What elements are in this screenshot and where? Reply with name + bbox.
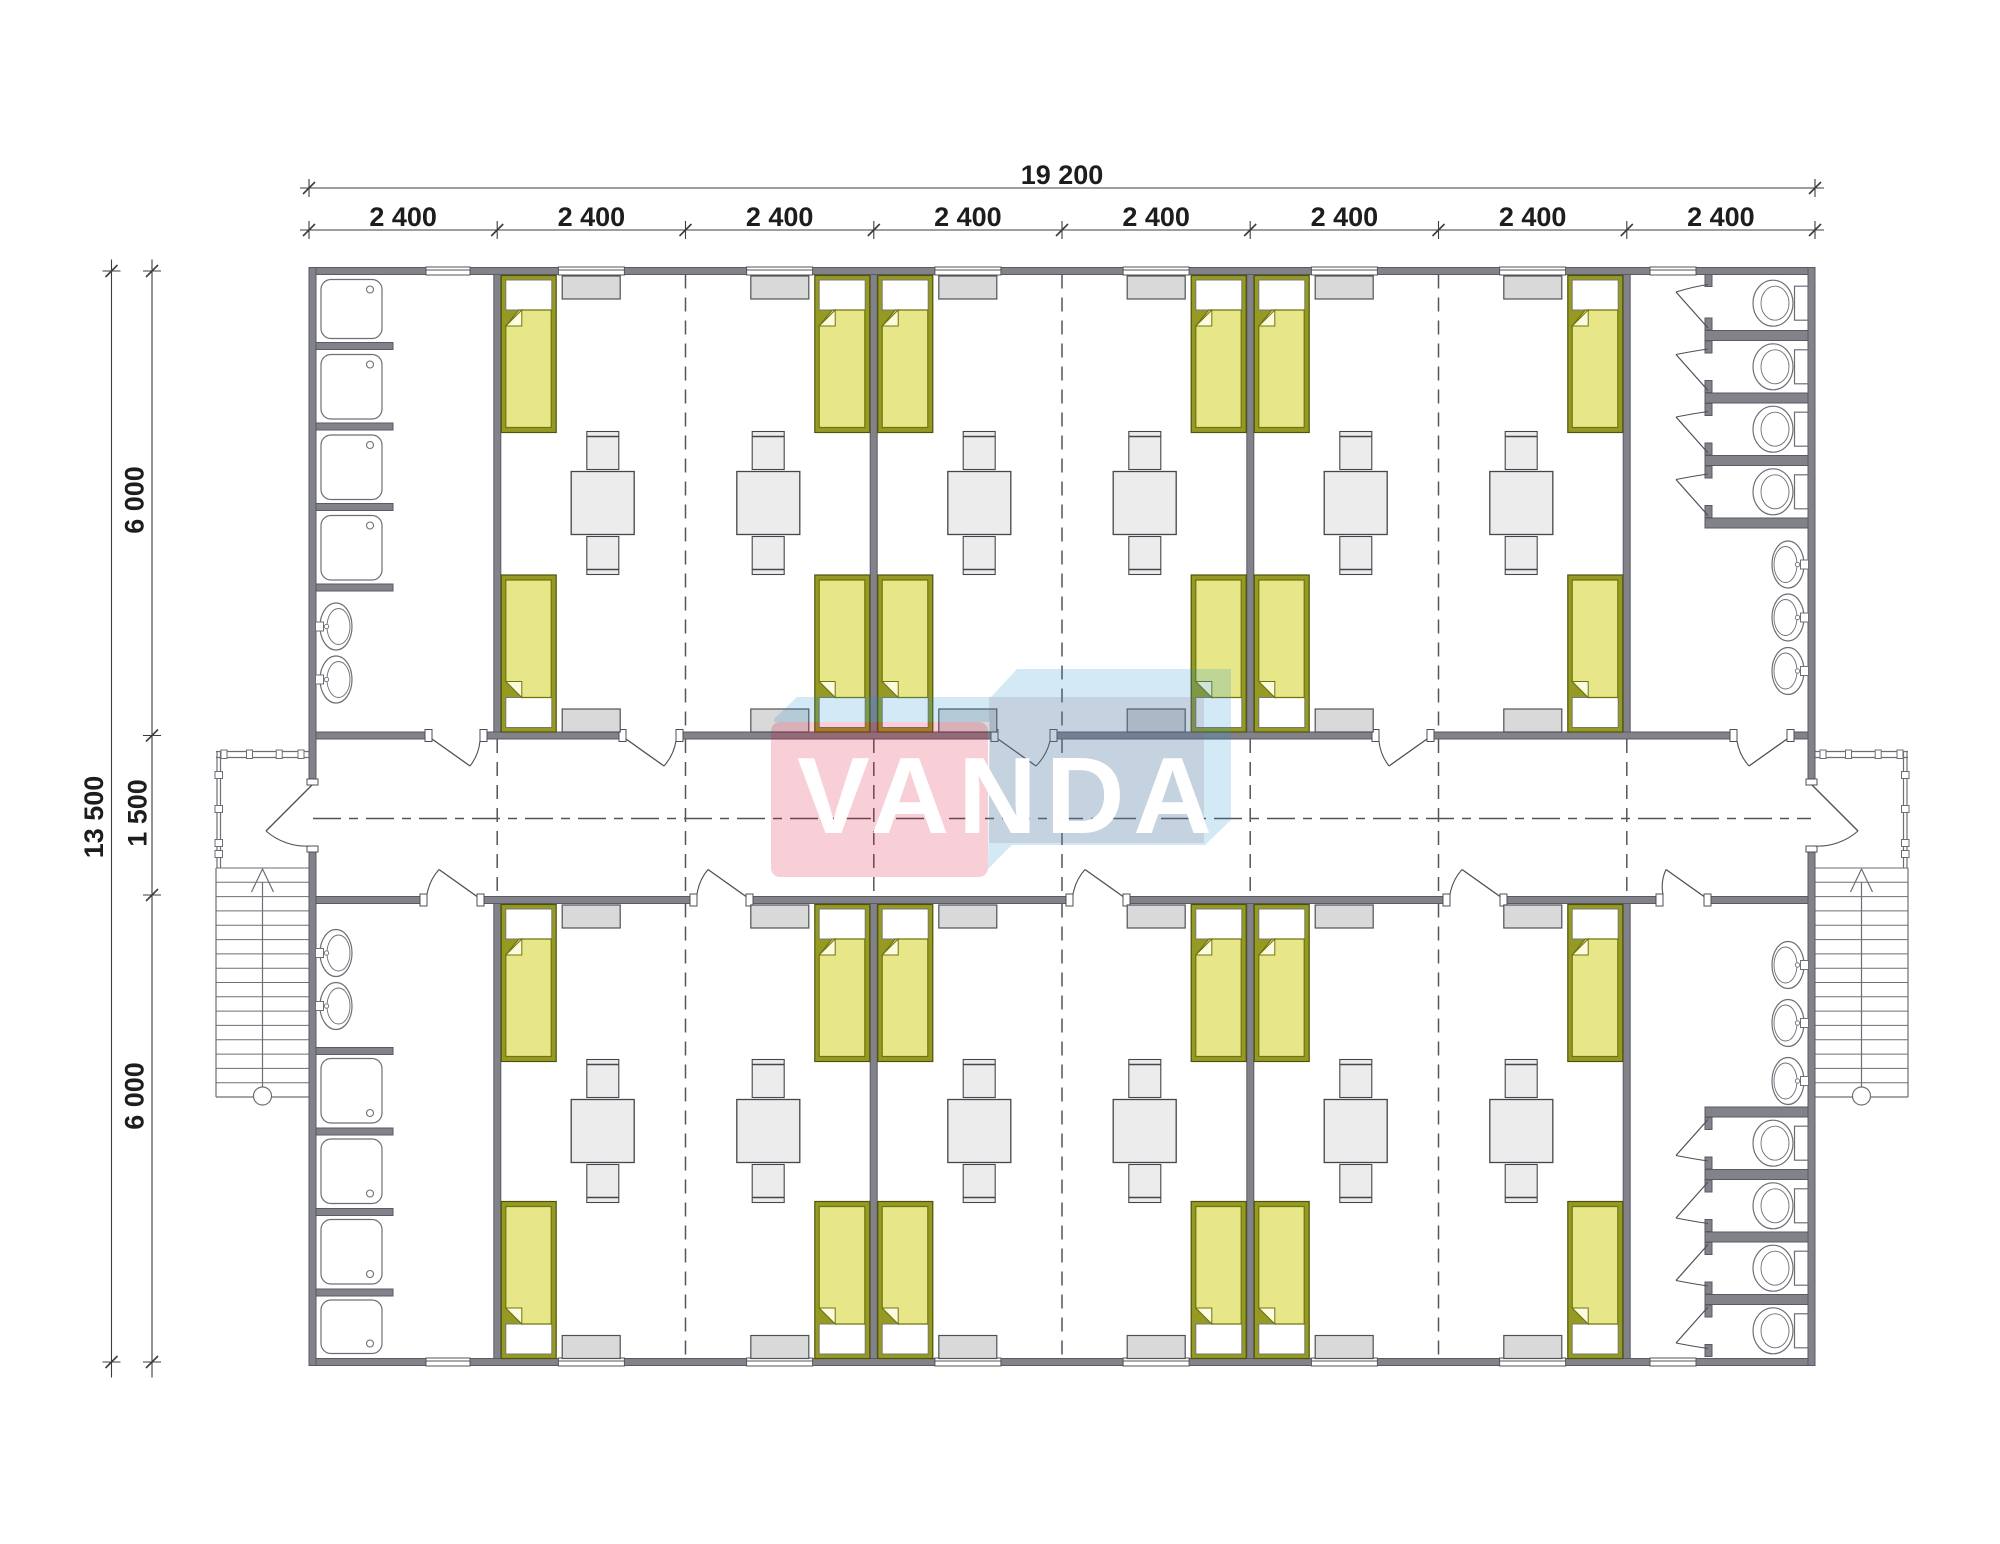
svg-text:2 400: 2 400 xyxy=(1122,202,1190,232)
svg-text:2 400: 2 400 xyxy=(558,202,626,232)
svg-text:6 000: 6 000 xyxy=(120,466,150,534)
svg-text:2 400: 2 400 xyxy=(746,202,814,232)
svg-text:2 400: 2 400 xyxy=(369,202,437,232)
svg-text:2 400: 2 400 xyxy=(934,202,1002,232)
svg-text:19 200: 19 200 xyxy=(1021,160,1104,190)
svg-text:2 400: 2 400 xyxy=(1687,202,1755,232)
svg-text:6 000: 6 000 xyxy=(120,1062,150,1130)
svg-text:2 400: 2 400 xyxy=(1499,202,1567,232)
svg-text:1 500: 1 500 xyxy=(123,779,153,847)
svg-text:13 500: 13 500 xyxy=(79,776,109,859)
svg-text:VANDA: VANDA xyxy=(797,735,1212,857)
svg-text:2 400: 2 400 xyxy=(1311,202,1379,232)
